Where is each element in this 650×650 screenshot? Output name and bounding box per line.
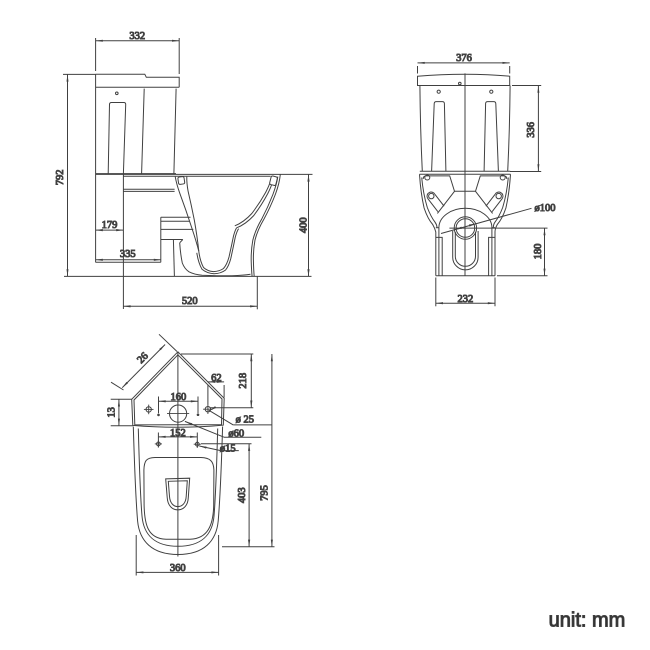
svg-text:160: 160 [171, 392, 187, 403]
svg-text:232: 232 [458, 294, 474, 305]
svg-text:795: 795 [260, 485, 271, 501]
svg-text:400: 400 [298, 217, 309, 233]
svg-text:335: 335 [120, 249, 136, 260]
svg-text:179: 179 [102, 220, 118, 231]
svg-text:152: 152 [170, 428, 186, 439]
svg-text:ø15: ø15 [220, 444, 236, 455]
svg-text:520: 520 [182, 296, 198, 307]
svg-text:26: 26 [136, 351, 151, 366]
svg-text:62: 62 [211, 373, 222, 384]
svg-text:ø100: ø100 [535, 203, 556, 214]
svg-text:13: 13 [107, 407, 118, 418]
svg-text:ø 25: ø 25 [236, 415, 254, 426]
svg-text:336: 336 [526, 122, 537, 138]
svg-text:403: 403 [237, 487, 248, 503]
svg-text:ø60: ø60 [228, 428, 244, 439]
svg-text:180: 180 [533, 244, 544, 260]
svg-text:332: 332 [129, 31, 145, 42]
svg-text:unit: mm: unit: mm [549, 610, 626, 632]
svg-text:218: 218 [238, 373, 249, 389]
svg-text:376: 376 [456, 53, 472, 64]
svg-text:360: 360 [170, 563, 186, 574]
svg-text:792: 792 [55, 169, 66, 185]
